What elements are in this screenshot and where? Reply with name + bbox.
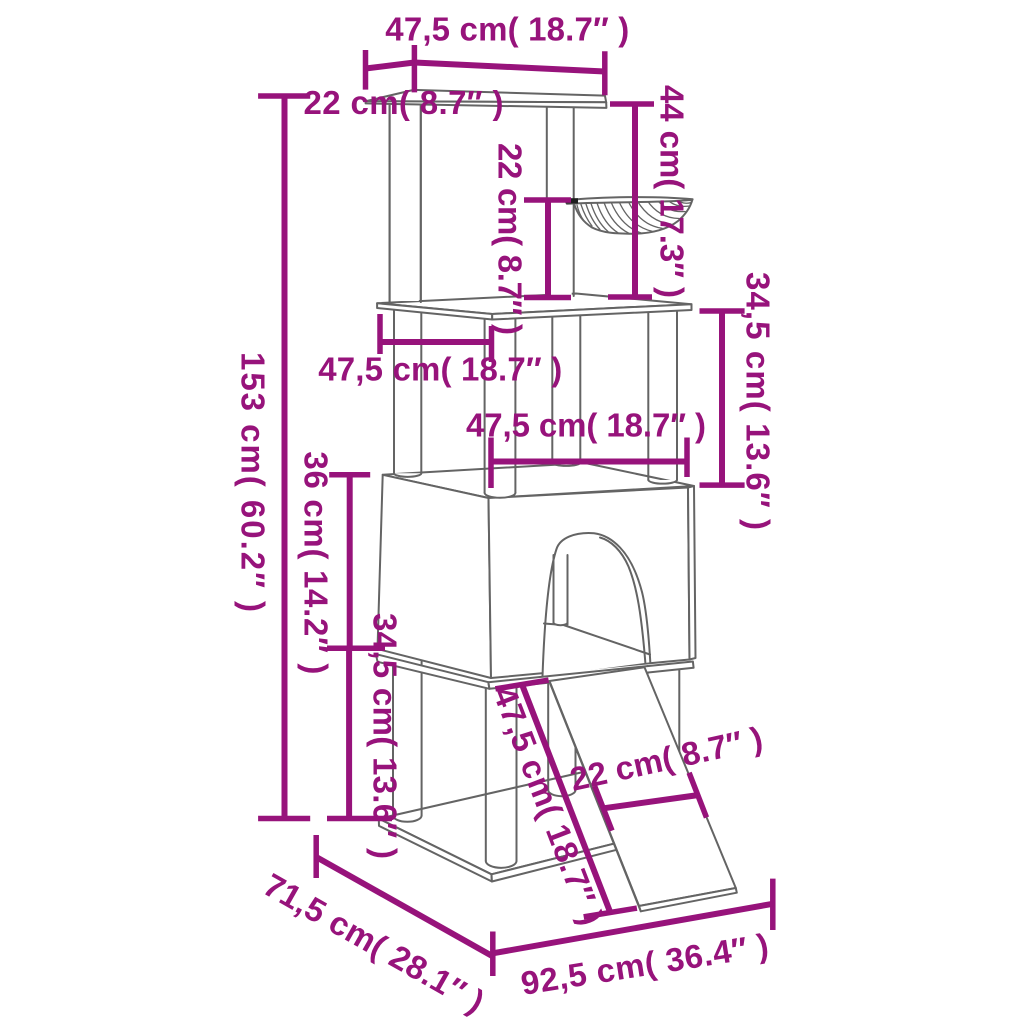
svg-text:47,5 cm( 18.7″ ): 47,5 cm( 18.7″ ): [385, 10, 629, 47]
svg-text:44 cm( 17.3″ ): 44 cm( 17.3″ ): [654, 85, 691, 298]
svg-text:36 cm( 14.2″ ): 36 cm( 14.2″ ): [298, 451, 335, 674]
svg-text:34,5 cm( 13.6″ ): 34,5 cm( 13.6″ ): [740, 272, 777, 530]
svg-text:47,5 cm( 18.7″ ): 47,5 cm( 18.7″ ): [466, 407, 706, 444]
svg-text:22 cm( 8.7″ ): 22 cm( 8.7″ ): [304, 84, 504, 121]
svg-text:22 cm( 8.7″ ): 22 cm( 8.7″ ): [492, 143, 529, 335]
svg-text:34,5 cm( 13.6″ ): 34,5 cm( 13.6″ ): [366, 613, 403, 859]
svg-text:47,5 cm( 18.7″ ): 47,5 cm( 18.7″ ): [318, 351, 562, 388]
